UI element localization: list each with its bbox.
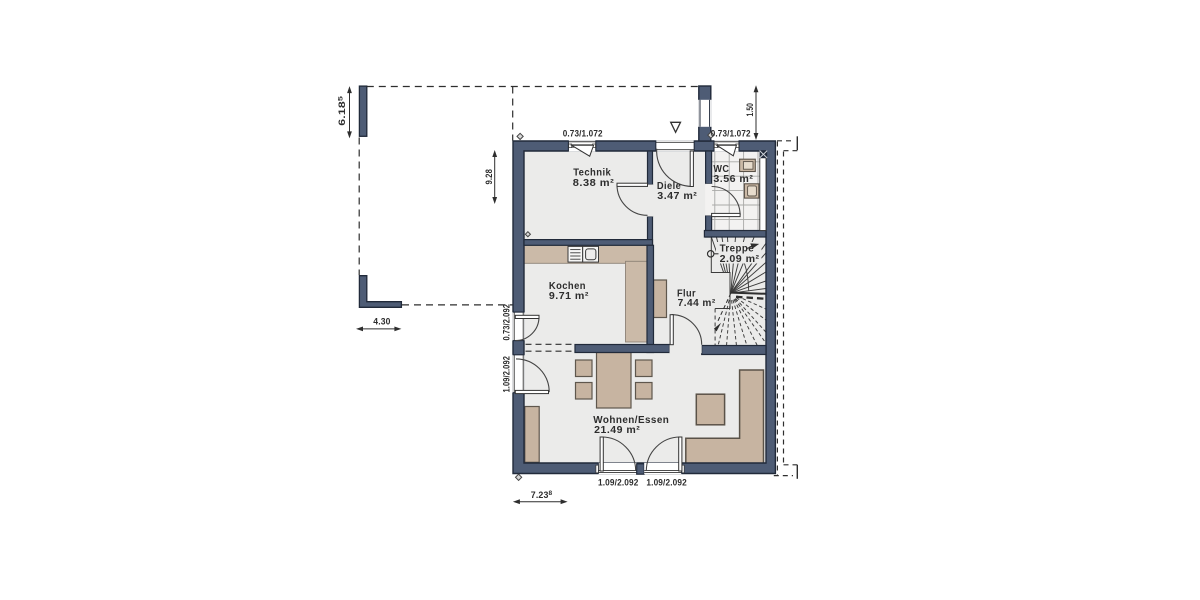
svg-text:1.50: 1.50 — [745, 103, 755, 117]
svg-text:4.30: 4.30 — [373, 317, 390, 327]
svg-text:9.28: 9.28 — [484, 169, 494, 185]
svg-text:Treppe: Treppe — [720, 243, 755, 254]
svg-text:7.44 m²: 7.44 m² — [678, 298, 716, 309]
svg-text:9.71 m²: 9.71 m² — [549, 291, 589, 302]
svg-text:8.38 m²: 8.38 m² — [573, 178, 615, 189]
svg-text:3.56 m²: 3.56 m² — [713, 174, 753, 185]
svg-text:0.73/1.072: 0.73/1.072 — [563, 129, 603, 139]
svg-text:2.09 m²: 2.09 m² — [720, 254, 760, 265]
svg-text:1.09/2.092: 1.09/2.092 — [502, 356, 512, 393]
svg-text:0.73/2.092: 0.73/2.092 — [502, 304, 512, 341]
svg-text:0.73/1.072: 0.73/1.072 — [711, 129, 751, 139]
svg-text:3.47 m²: 3.47 m² — [657, 191, 697, 202]
svg-text:1.09/2.092: 1.09/2.092 — [598, 478, 639, 488]
svg-text:1.09/2.092: 1.09/2.092 — [646, 478, 687, 488]
svg-text:21.49 m²: 21.49 m² — [594, 425, 640, 436]
